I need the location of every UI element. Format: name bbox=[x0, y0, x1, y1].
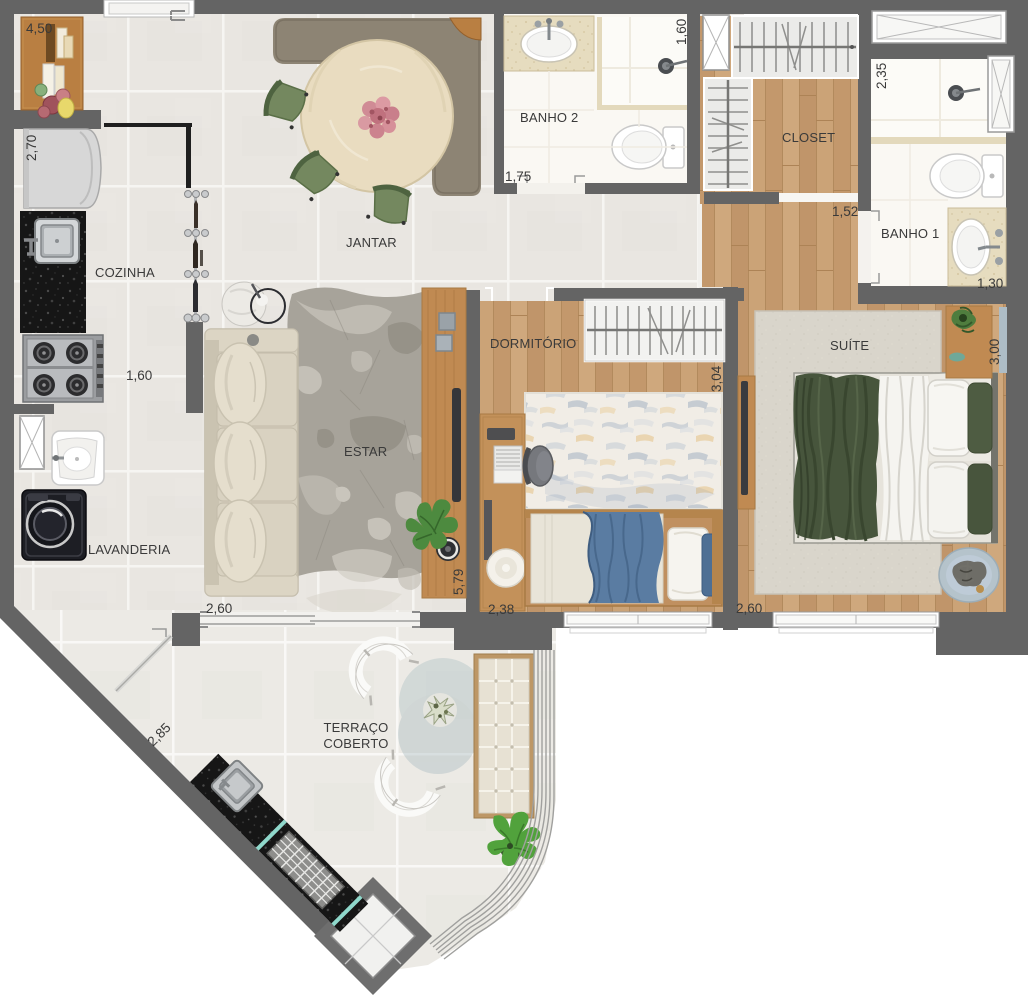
svg-text:CLOSET: CLOSET bbox=[782, 130, 835, 145]
svg-text:BANHO 2: BANHO 2 bbox=[520, 110, 578, 125]
svg-text:3,00: 3,00 bbox=[987, 339, 1002, 365]
svg-text:LAVANDERIA: LAVANDERIA bbox=[88, 542, 171, 557]
svg-text:1,60: 1,60 bbox=[674, 19, 689, 45]
svg-text:JANTAR: JANTAR bbox=[346, 235, 397, 250]
svg-text:DORMITÓRIO: DORMITÓRIO bbox=[490, 336, 577, 351]
svg-text:1,52: 1,52 bbox=[832, 204, 858, 219]
svg-text:5,79: 5,79 bbox=[451, 569, 466, 595]
svg-text:2,35: 2,35 bbox=[874, 63, 889, 89]
svg-text:BANHO 1: BANHO 1 bbox=[881, 226, 939, 241]
svg-text:4,50: 4,50 bbox=[26, 21, 52, 36]
svg-text:TERRAÇO: TERRAÇO bbox=[324, 720, 389, 735]
svg-text:2,60: 2,60 bbox=[206, 601, 232, 616]
svg-text:2,60: 2,60 bbox=[736, 601, 762, 616]
svg-text:2,38: 2,38 bbox=[488, 602, 514, 617]
svg-text:2,70: 2,70 bbox=[24, 135, 39, 161]
svg-text:COZINHA: COZINHA bbox=[95, 265, 155, 280]
svg-text:SUÍTE: SUÍTE bbox=[830, 338, 869, 353]
svg-text:COBERTO: COBERTO bbox=[323, 736, 388, 751]
svg-text:1,60: 1,60 bbox=[126, 368, 152, 383]
svg-text:1,75: 1,75 bbox=[505, 169, 531, 184]
svg-text:1,30: 1,30 bbox=[977, 276, 1003, 291]
svg-text:ESTAR: ESTAR bbox=[344, 444, 387, 459]
svg-text:3,04: 3,04 bbox=[709, 365, 724, 392]
